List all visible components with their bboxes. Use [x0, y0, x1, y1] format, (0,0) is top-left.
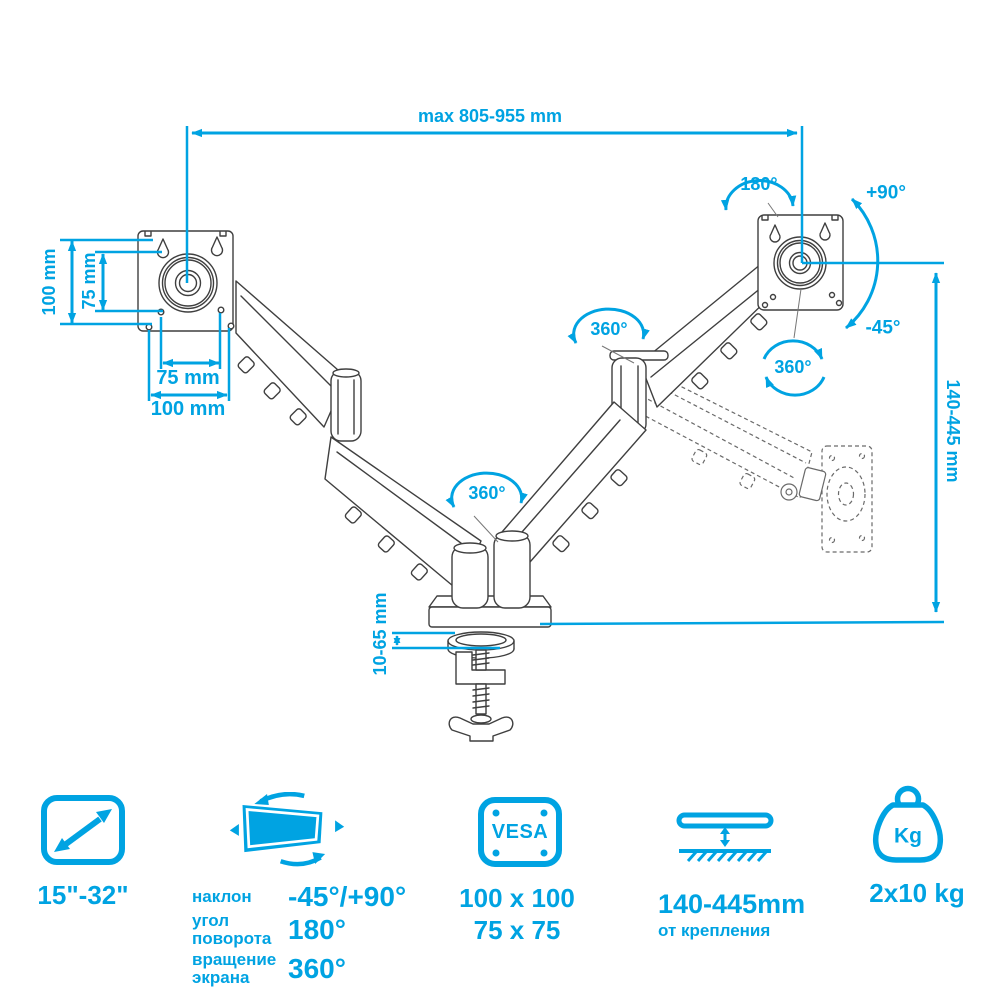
vesa-100mm-vertical-dimension: 100 mm: [40, 248, 58, 315]
mount-height-spec: 140-445mm от крепления: [658, 891, 805, 939]
height-range-dimension: 140-445 mm: [944, 379, 962, 482]
monitor-mount-spec-sheet: max 805-955 mm 100 mm 75 mm 75 mm 100 mm…: [0, 0, 1000, 1000]
adjustability-spec-list: наклон -45°/+90° угол поворота 180° вращ…: [192, 883, 406, 989]
mount-height-value: 140-445mm: [658, 891, 805, 918]
swivel-180-label: 180°: [740, 175, 777, 193]
vesa-75mm-horizontal-dimension: 75 mm: [156, 368, 219, 388]
tilt-screen-icon: [228, 792, 346, 876]
tilt-label: наклон: [192, 888, 288, 906]
vesa-size-100: 100 x 100: [457, 882, 577, 914]
vesa-100mm-horizontal-dimension: 100 mm: [151, 399, 226, 419]
swivel-label: угол поворота: [192, 912, 288, 948]
tilt-down-45-label: -45°: [865, 319, 900, 338]
base-rotation-360-label: 360°: [468, 484, 505, 502]
rotation-value: 360°: [288, 955, 346, 983]
adjustability-row-rotation: вращение экрана 360°: [192, 949, 406, 989]
screen-size-icon: [40, 794, 126, 866]
vesa-size-75: 75 x 75: [457, 914, 577, 946]
vesa-icon-text: VESA: [492, 822, 548, 842]
clamp-range-dimension: 10-65 mm: [371, 592, 389, 675]
vesa-75mm-vertical-dimension: 75 mm: [80, 252, 98, 309]
tilt-value: -45°/+90°: [288, 883, 406, 911]
vesa-sizes: 100 x 100 75 x 75: [457, 882, 577, 946]
mount-height-icon: [676, 812, 774, 864]
adjustability-row-tilt: наклон -45°/+90°: [192, 883, 406, 911]
phantom-arm-joint: [781, 467, 826, 501]
max-width-dimension: max 805-955 mm: [418, 107, 562, 125]
elbow-rotation-360-label: 360°: [590, 320, 627, 338]
phantom-arm: [634, 368, 872, 552]
weight-icon-text: Kg: [894, 826, 922, 847]
mount-height-caption: от крепления: [658, 922, 805, 939]
plate-rotation-360-label: 360°: [774, 358, 811, 376]
arm-structure: [236, 264, 776, 627]
screen-size-value: 15"-32": [37, 882, 128, 908]
rotation-label: вращение экрана: [192, 951, 288, 987]
weight-value: 2x10 kg: [869, 880, 964, 906]
adjustability-row-swivel: угол поворота 180°: [192, 911, 406, 949]
swivel-value: 180°: [288, 916, 346, 944]
tilt-up-90-label: +90°: [866, 184, 906, 203]
